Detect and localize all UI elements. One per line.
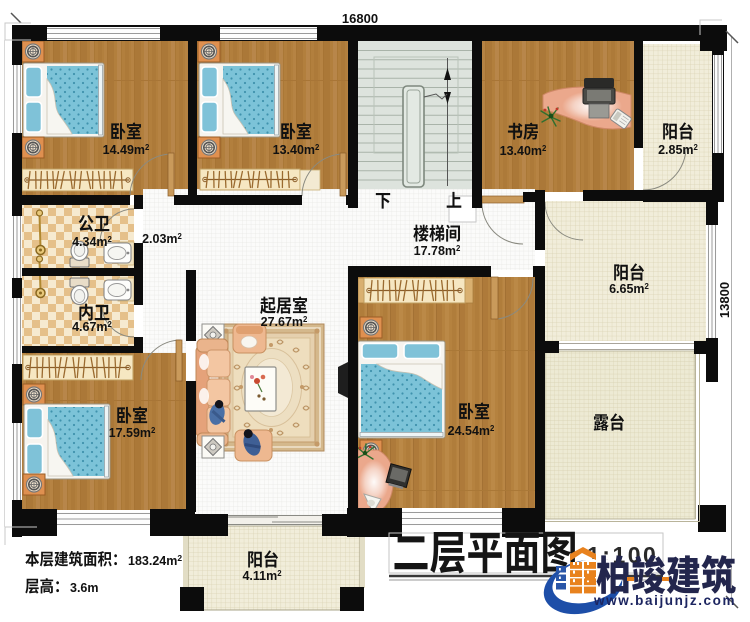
svg-text:6.65m2: 6.65m2 bbox=[609, 282, 649, 296]
svg-text:16800: 16800 bbox=[342, 11, 378, 26]
svg-text:17.59m2: 17.59m2 bbox=[109, 426, 156, 440]
svg-text:3.6m: 3.6m bbox=[70, 581, 99, 595]
svg-text:27.67m2: 27.67m2 bbox=[261, 315, 308, 329]
svg-text:13.40m2: 13.40m2 bbox=[273, 143, 320, 157]
svg-text:2.03m2: 2.03m2 bbox=[142, 232, 182, 246]
svg-text:24.54m2: 24.54m2 bbox=[448, 424, 495, 438]
svg-text:17.78m2: 17.78m2 bbox=[414, 244, 461, 258]
svg-text:www.baijunjz.com: www.baijunjz.com bbox=[593, 593, 736, 608]
svg-text:14.49m2: 14.49m2 bbox=[103, 143, 150, 157]
svg-text:2.85m2: 2.85m2 bbox=[658, 143, 698, 157]
svg-text:4.67m2: 4.67m2 bbox=[72, 320, 112, 334]
svg-text:4.11m2: 4.11m2 bbox=[242, 569, 282, 583]
svg-text:13800: 13800 bbox=[717, 282, 732, 318]
svg-text:4.34m2: 4.34m2 bbox=[72, 235, 112, 249]
svg-text:13.40m2: 13.40m2 bbox=[500, 144, 547, 158]
svg-text:183.24m2: 183.24m2 bbox=[128, 553, 182, 568]
